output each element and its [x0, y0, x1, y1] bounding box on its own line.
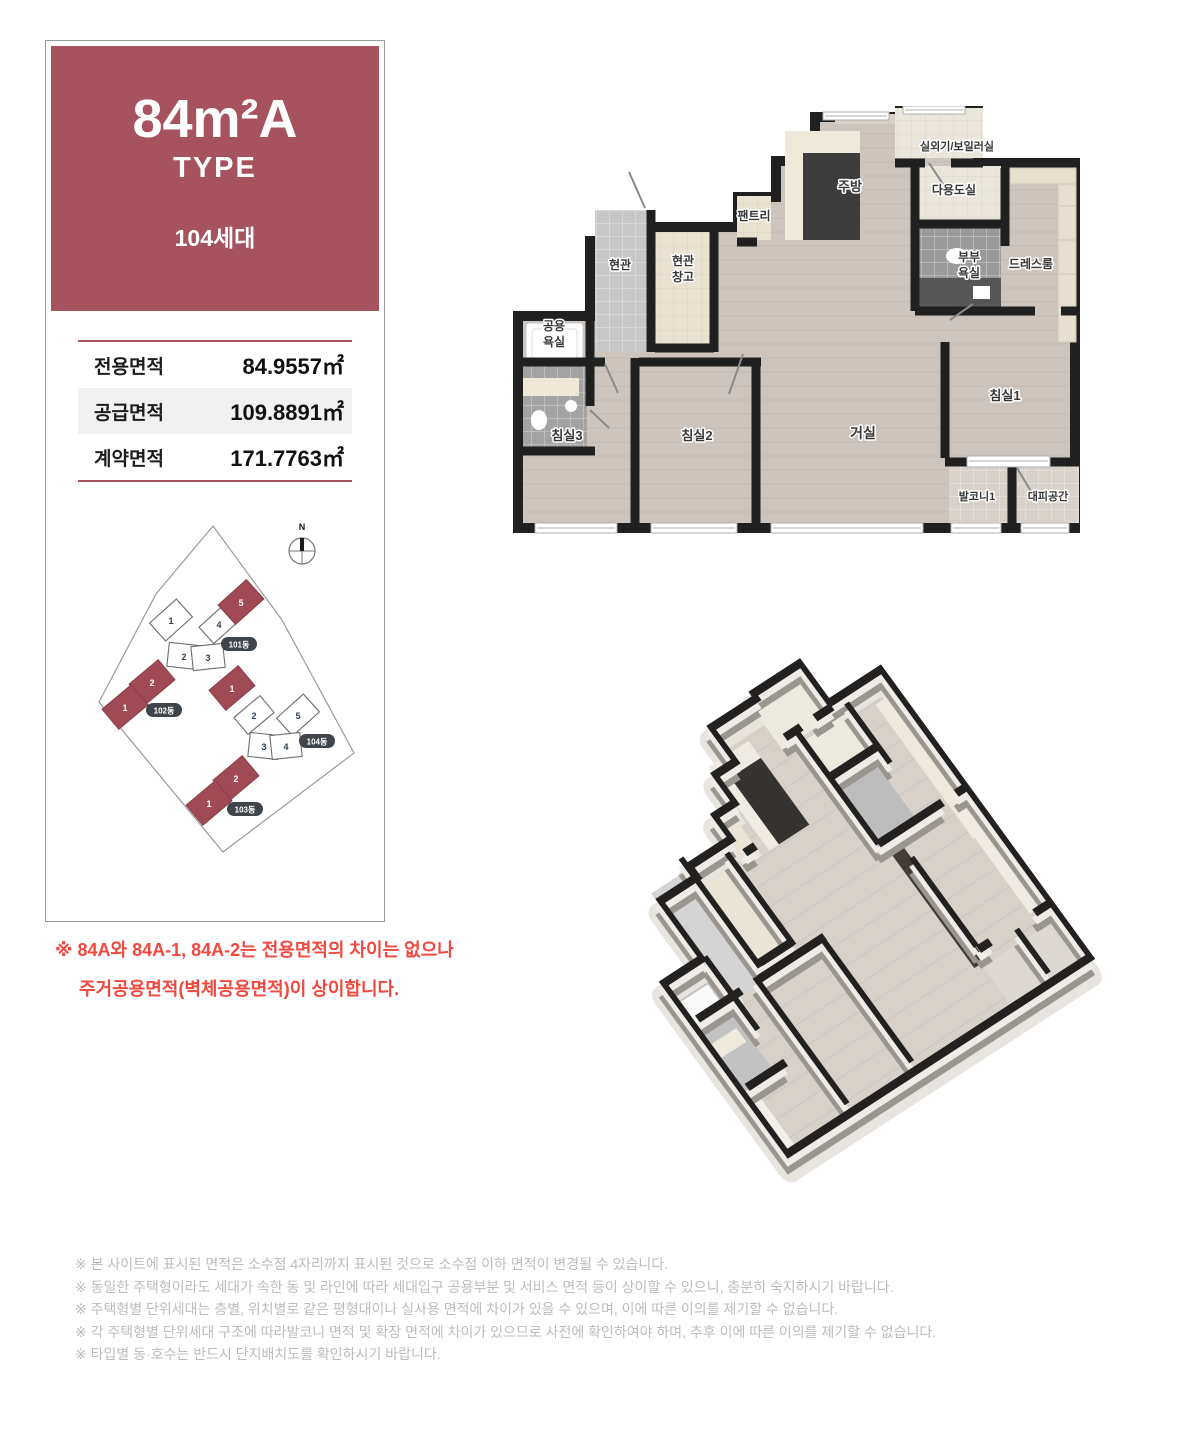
svg-text:104동: 104동	[307, 738, 328, 747]
disclaimer-line: ※ 타입별 동·호수는 반드시 단지배치도를 확인하시기 바랍니다.	[75, 1343, 1145, 1366]
label-living: 거실	[850, 425, 876, 441]
building-label-102: 102동	[146, 703, 182, 717]
svg-text:3: 3	[205, 653, 210, 663]
label-utility: 다용도실	[932, 182, 976, 197]
building-label-104: 104동	[299, 734, 335, 748]
area-label: 공급면적	[78, 398, 209, 425]
label-common-bath: 공용	[543, 318, 565, 333]
area-value: 109.8891㎡	[209, 395, 352, 427]
note-line-1: ※ 84A와 84A-1, 84A-2는 전용면적의 차이는 없으나	[55, 936, 485, 962]
svg-text:101동: 101동	[229, 641, 250, 650]
disclaimer-line: ※ 동일한 주택형이라도 세대가 속한 동 및 라인에 따라 세대입구 공용부분…	[75, 1276, 1145, 1299]
svg-text:2: 2	[251, 711, 256, 721]
svg-text:102동: 102동	[154, 707, 175, 716]
area-row-contract: 계약면적 171.7763㎡	[78, 434, 352, 480]
svg-text:1: 1	[122, 703, 127, 713]
building-unit-highlighted: 1	[209, 666, 255, 710]
type-difference-note: ※ 84A와 84A-1, 84A-2는 전용면적의 차이는 없으나 주거공용면…	[55, 936, 485, 1001]
building-label-103: 103동	[227, 802, 263, 816]
type-card: 84m²A TYPE 104세대 전용면적 84.9557㎡ 공급면적 109.…	[45, 40, 385, 922]
svg-text:1: 1	[229, 684, 234, 694]
note-line-2: 주거공용면적(벽체공용면적)이 상이합니다.	[55, 975, 485, 1001]
type-units-count: 104세대	[51, 227, 379, 250]
svg-text:3: 3	[261, 742, 266, 752]
building-unit: 1	[150, 599, 193, 641]
svg-text:1: 1	[206, 799, 211, 809]
area-label: 계약면적	[78, 444, 209, 471]
page: { "type_card": { "title": "84m²A", "subt…	[0, 0, 1200, 1446]
disclaimer-list: ※ 본 사이트에 표시된 면적은 소수점 4자리까지 표시된 것으로 소수점 이…	[75, 1253, 1145, 1366]
disclaimer-line: ※ 본 사이트에 표시된 면적은 소수점 4자리까지 표시된 것으로 소수점 이…	[75, 1253, 1145, 1276]
svg-text:5: 5	[295, 711, 300, 721]
label-balcony: 발코니1	[959, 489, 995, 503]
label-dress-room: 드레스룸	[1009, 256, 1053, 271]
area-row-exclusive: 전용면적 84.9557㎡	[78, 342, 352, 388]
disclaimer-line: ※ 주택형별 단위세대는 층별, 위치별로 같은 평형대이나 실사용 면적에 차…	[75, 1298, 1145, 1321]
svg-text:2: 2	[181, 652, 186, 662]
svg-text:N: N	[299, 522, 306, 532]
svg-text:5: 5	[238, 598, 243, 608]
label-entrance-storage: 현관	[672, 253, 694, 268]
label-common-bath: 욕실	[543, 334, 565, 349]
label-bed1: 침실1	[989, 388, 1020, 403]
building-cluster-101: 1 2 3 4 5 101동	[150, 580, 264, 671]
svg-text:2: 2	[149, 678, 154, 688]
type-subtitle: TYPE	[51, 154, 379, 183]
floorplan-3d	[490, 595, 1150, 1235]
disclaimer-line: ※ 각 주택형별 단위세대 구조에 따라발코니 면적 및 확장 면적에 차이가 …	[75, 1321, 1145, 1344]
label-shelter: 대피공간	[1028, 489, 1068, 503]
label-boiler: 실외기/보일러실	[920, 139, 994, 153]
label-pantry: 팬트리	[737, 208, 770, 223]
area-table: 전용면적 84.9557㎡ 공급면적 109.8891㎡ 계약면적 171.77…	[78, 340, 352, 482]
svg-text:1: 1	[168, 616, 173, 626]
site-plan-map: N 1 2 3 4 5 101동 2 1 102동 1 2 5 3 4 104동	[96, 516, 366, 906]
area-value: 171.7763㎡	[209, 441, 352, 473]
label-entrance-storage: 창고	[672, 269, 694, 284]
area-row-supply: 공급면적 109.8891㎡	[78, 388, 352, 434]
label-bed3: 침실3	[551, 428, 582, 443]
svg-text:4: 4	[216, 620, 221, 630]
svg-text:4: 4	[283, 742, 288, 752]
label-master-bath: 부부	[958, 250, 980, 264]
building-cluster-102: 2 1 102동	[102, 660, 182, 729]
label-master-bath: 욕실	[958, 265, 980, 280]
building-label-101: 101동	[221, 637, 257, 651]
type-title: 84m²A	[51, 92, 379, 146]
area-value: 84.9557㎡	[209, 349, 352, 381]
building-unit: 4	[270, 732, 302, 759]
building-unit: 5	[277, 694, 320, 736]
svg-text:103동: 103동	[235, 806, 256, 815]
building-unit: 2	[234, 696, 274, 735]
label-bed2: 침실2	[681, 428, 712, 443]
building-cluster-104: 1 2 5 3 4 104동	[209, 666, 335, 760]
compass-icon: N	[289, 522, 315, 564]
floorplan-2d: 실외기/보일러실 주방 다용도실 팬트리 현관 현관 창고 공용 욕실 부부 욕…	[505, 106, 1085, 536]
building-cluster-103: 2 1 103동	[186, 756, 263, 825]
building-unit: 3	[191, 643, 225, 670]
label-kitchen: 주방	[838, 179, 862, 194]
label-entrance: 현관	[609, 257, 631, 272]
type-header: 84m²A TYPE 104세대	[51, 46, 379, 311]
area-label: 전용면적	[78, 352, 209, 379]
svg-text:2: 2	[233, 774, 238, 784]
